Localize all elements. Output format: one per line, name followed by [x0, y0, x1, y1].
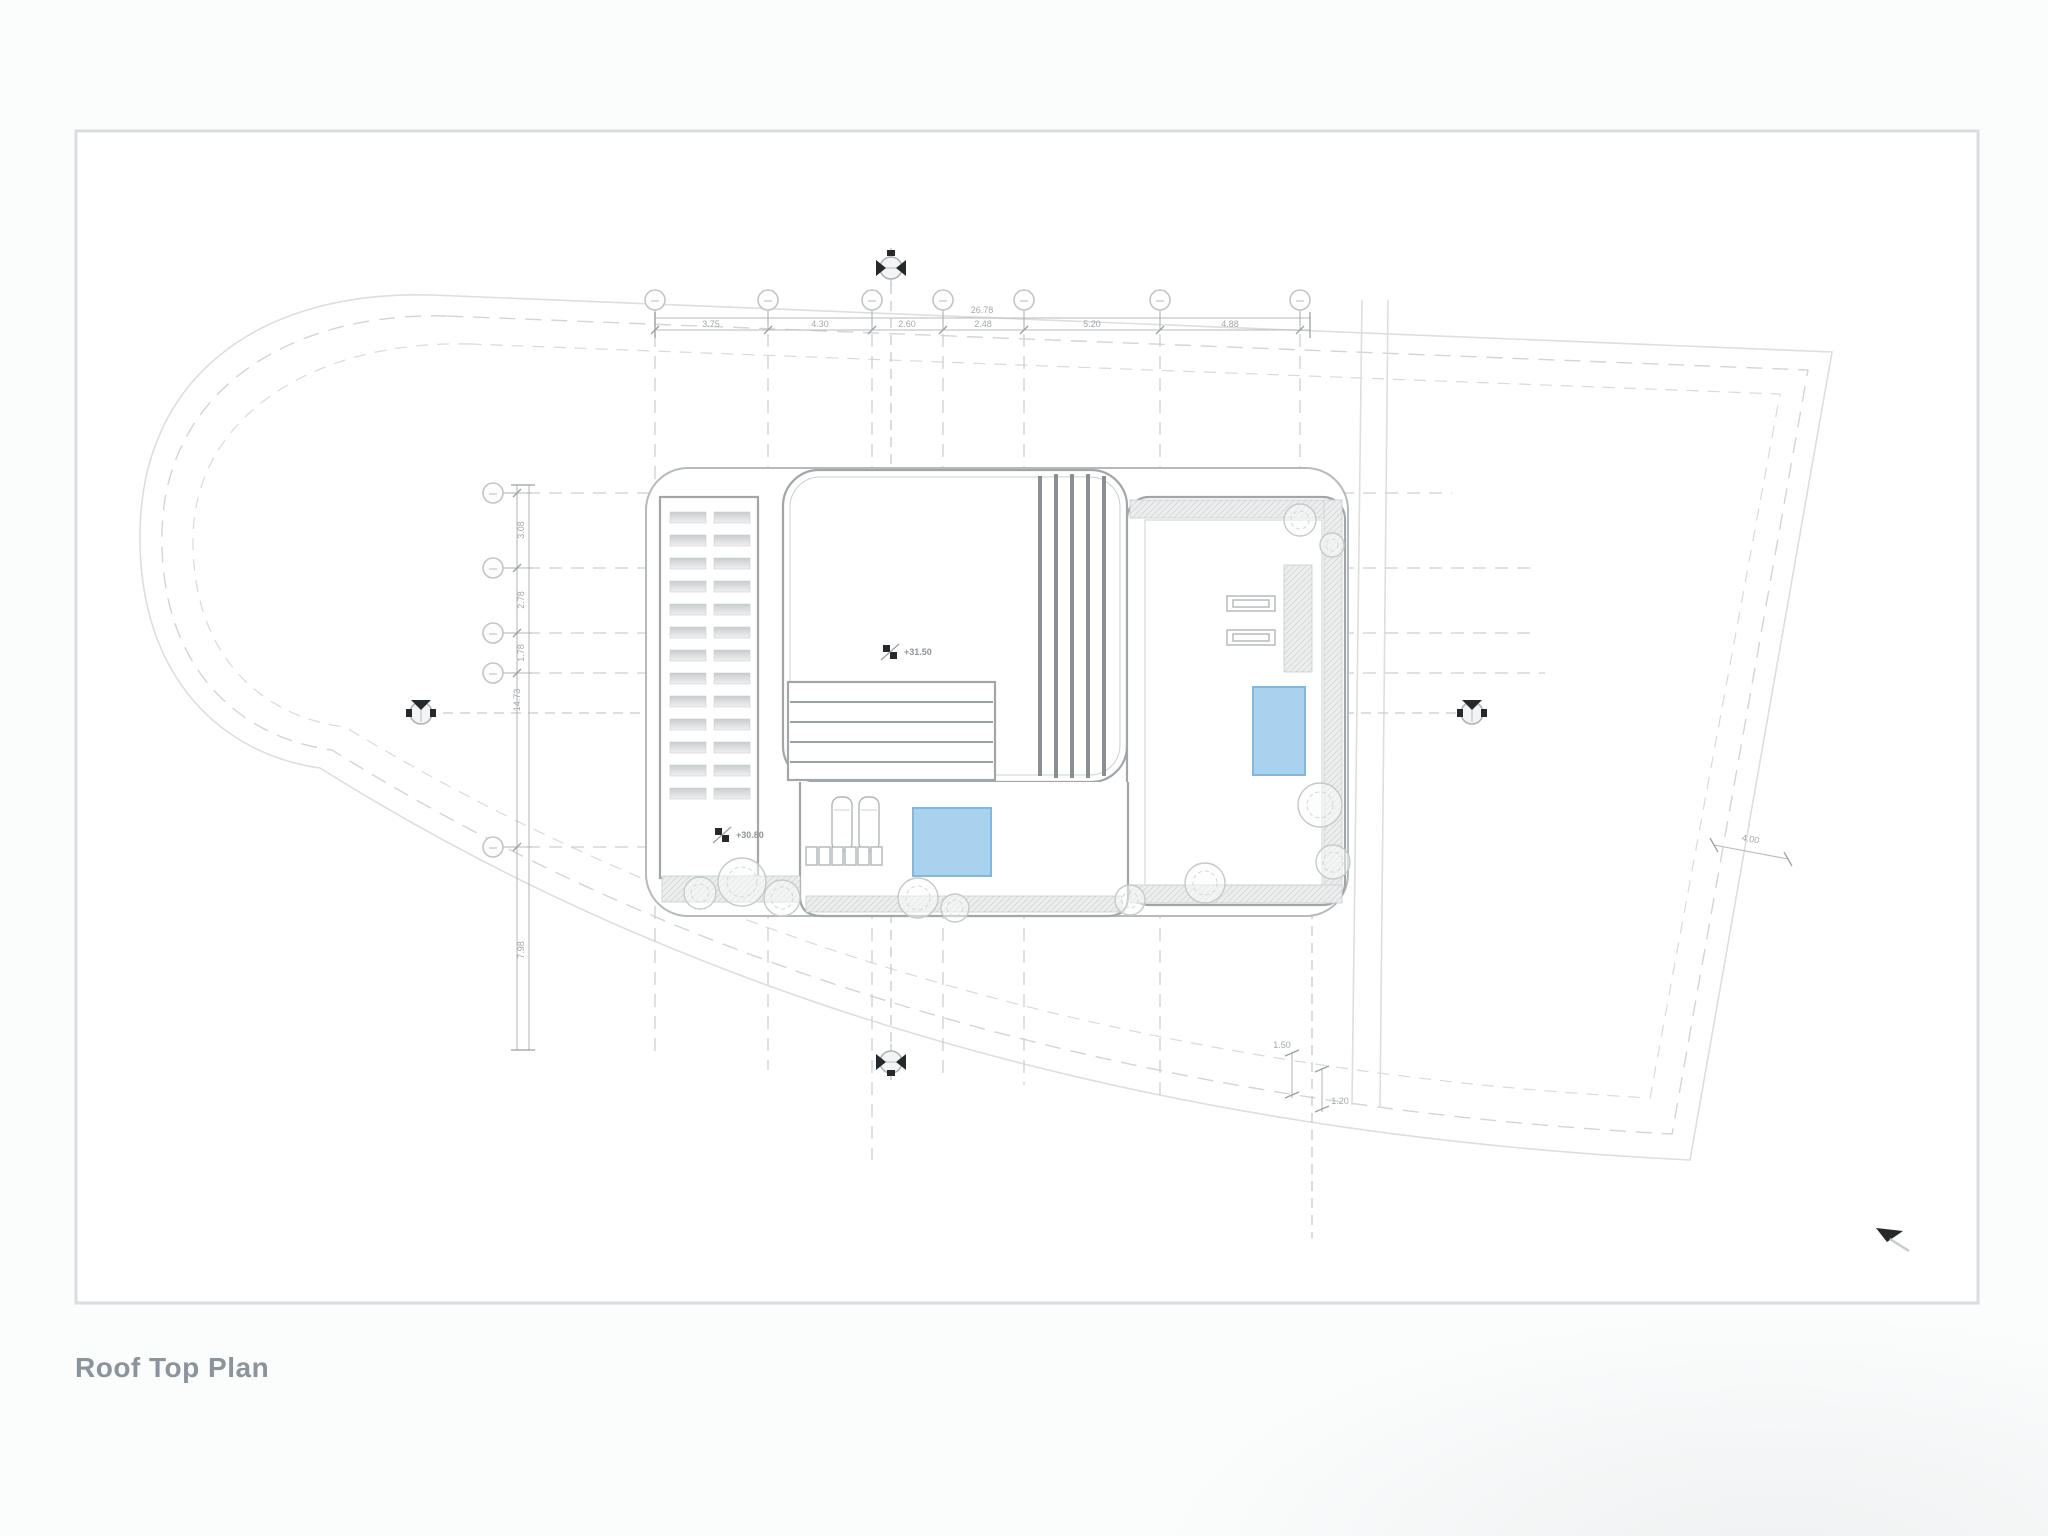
- central-roof: [783, 470, 1127, 782]
- dim-left-seg-3: 1.78: [516, 644, 526, 662]
- dim-notch-a: 1.50: [1273, 1040, 1291, 1050]
- dim-top-seg-6: 4.88: [1221, 319, 1239, 329]
- roof-plan-drawing: 26.78 3.75 4.30 2.60 2.48 5.20 4.88 3.08…: [0, 0, 2048, 1536]
- tree: [1320, 533, 1344, 557]
- level-roof-text: +31.50: [904, 647, 932, 657]
- bar-counter: [1284, 565, 1312, 672]
- dim-top-seg-3: 2.60: [898, 319, 916, 329]
- dim-notch-b: 1.20: [1331, 1096, 1349, 1106]
- roof-top-plan-page: 26.78 3.75 4.30 2.60 2.48 5.20 4.88 3.08…: [0, 0, 2048, 1536]
- dim-left-seg-2: 2.78: [516, 591, 526, 609]
- tree: [684, 877, 716, 909]
- tree: [764, 880, 800, 916]
- building: [646, 468, 1350, 922]
- right-wing: [1127, 497, 1345, 905]
- dim-top-seg-5: 5.20: [1083, 319, 1101, 329]
- dim-left-seg-1: 3.08: [516, 521, 526, 539]
- tree: [1115, 885, 1145, 915]
- planter-band-right: [1324, 500, 1342, 902]
- stairs: [788, 682, 995, 780]
- tree: [1185, 863, 1225, 903]
- tree: [1284, 504, 1316, 536]
- dim-top-seg-4: 2.48: [974, 319, 992, 329]
- tree: [941, 894, 969, 922]
- dim-left-seg-5: 7.98: [516, 941, 526, 959]
- bottom-terrace: [800, 782, 1128, 916]
- dim-top-seg-1: 3.75: [702, 319, 720, 329]
- level-terrace-text: +30.80: [736, 830, 764, 840]
- tree: [1298, 783, 1342, 827]
- dim-top-seg-2: 4.30: [811, 319, 829, 329]
- tree: [898, 878, 938, 918]
- pool-right-wing: [1253, 687, 1305, 775]
- dim-top-overall: 26.78: [971, 305, 994, 315]
- planter-band-bottom: [1130, 885, 1342, 903]
- pool-terrace: [913, 808, 991, 876]
- tree: [1316, 845, 1350, 879]
- dim-left-seg-4: 14.73: [512, 689, 522, 712]
- left-louver-block: [660, 497, 758, 878]
- plan-title: Roof Top Plan: [75, 1352, 269, 1384]
- tree: [718, 858, 766, 906]
